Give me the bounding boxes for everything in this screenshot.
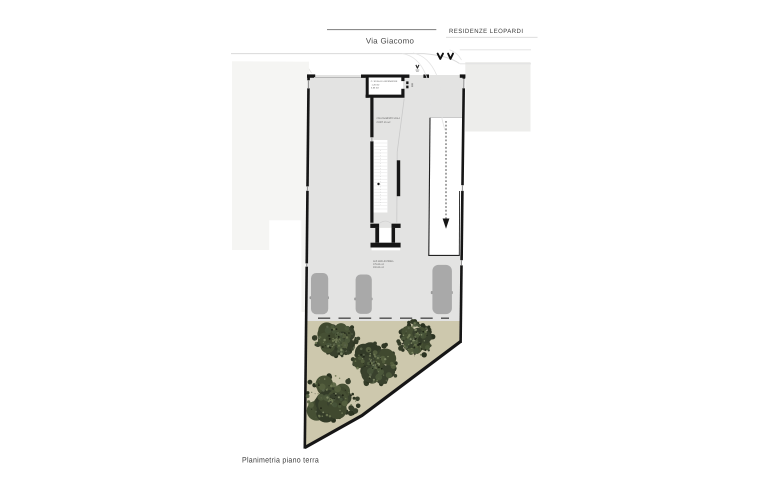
svg-text:SUP. AREA ESTERNA: SUP. AREA ESTERNA (373, 260, 394, 263)
svg-text:CORT. 45 m2: CORT. 45 m2 (377, 121, 392, 124)
svg-text:220.00 m2: 220.00 m2 (373, 266, 385, 269)
svg-text:1.25 m2: 1.25 m2 (372, 83, 381, 86)
svg-text:C. SCALA E ASCENSORE: C. SCALA E ASCENSORE (371, 80, 398, 83)
svg-text:Via Giacomo: Via Giacomo (366, 37, 415, 46)
svg-text:175.00 m2: 175.00 m2 (373, 263, 385, 266)
svg-text:RESIDENZE LEOPARDI: RESIDENZE LEOPARDI (449, 28, 524, 35)
svg-text:Planimetria piano terra: Planimetria piano terra (242, 456, 319, 465)
svg-text:COLLEGAMENTO SCALA: COLLEGAMENTO SCALA (377, 117, 401, 120)
svg-text:4.05 m2: 4.05 m2 (371, 87, 380, 90)
